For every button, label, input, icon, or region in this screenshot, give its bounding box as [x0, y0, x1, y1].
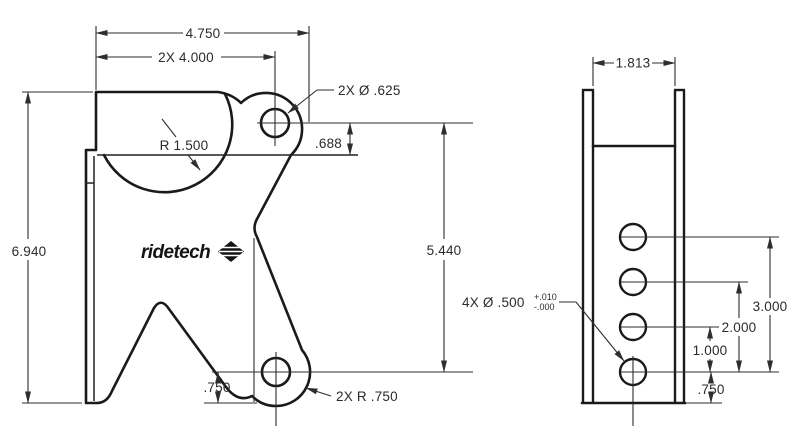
dim-inside-width: 1.813 [616, 56, 651, 71]
dim-hole-span-3: 3.000 [753, 299, 788, 314]
dim-flange-to-hole: .688 [315, 136, 342, 151]
dim-side-bottom-hole-offset: .750 [697, 382, 724, 397]
side-view: 1.813 3.000 2.000 1.000 .750 4X Ø .500 +… [462, 56, 787, 427]
dim-hole-spacing-horizontal: 2X 4.000 [158, 50, 214, 65]
leader-radius-upper [162, 119, 176, 137]
dim-overall-height: 6.940 [12, 244, 47, 259]
dim-bottom-hole-offset: .750 [203, 380, 230, 395]
dim-hole-span-2: 2.000 [722, 320, 757, 335]
note-hole-diameter: 2X Ø .625 [338, 83, 401, 98]
ridetech-logo-text: ridetech [141, 242, 210, 263]
note-tolerance-minus: -.000 [534, 302, 555, 312]
shock-absorber-icon [218, 241, 244, 262]
cad-drawing-page: 4.750 2X 4.000 2X Ø .625 R 1.500 .688 5.… [0, 0, 800, 446]
cad-drawing-canvas: 4.750 2X 4.000 2X Ø .625 R 1.500 .688 5.… [0, 0, 800, 446]
dim-hole-span-1: 1.000 [693, 343, 728, 358]
dim-overall-width: 4.750 [186, 26, 221, 41]
leader-lobe-radius [306, 388, 331, 396]
leader-hole-note-diagonal [288, 90, 317, 113]
dim-hole-spacing-vertical: 5.440 [427, 243, 462, 258]
note-lobe-radius: 2X R .750 [336, 389, 398, 404]
leader-radius-lower [188, 155, 200, 170]
note-tolerance-plus: +.010 [534, 292, 557, 302]
ridetech-logo: ridetech [141, 241, 244, 263]
note-side-hole-diameter: 4X Ø .500 [462, 295, 525, 310]
front-view: 4.750 2X 4.000 2X Ø .625 R 1.500 .688 5.… [12, 26, 473, 426]
note-cutout-radius: R 1.500 [160, 138, 209, 153]
